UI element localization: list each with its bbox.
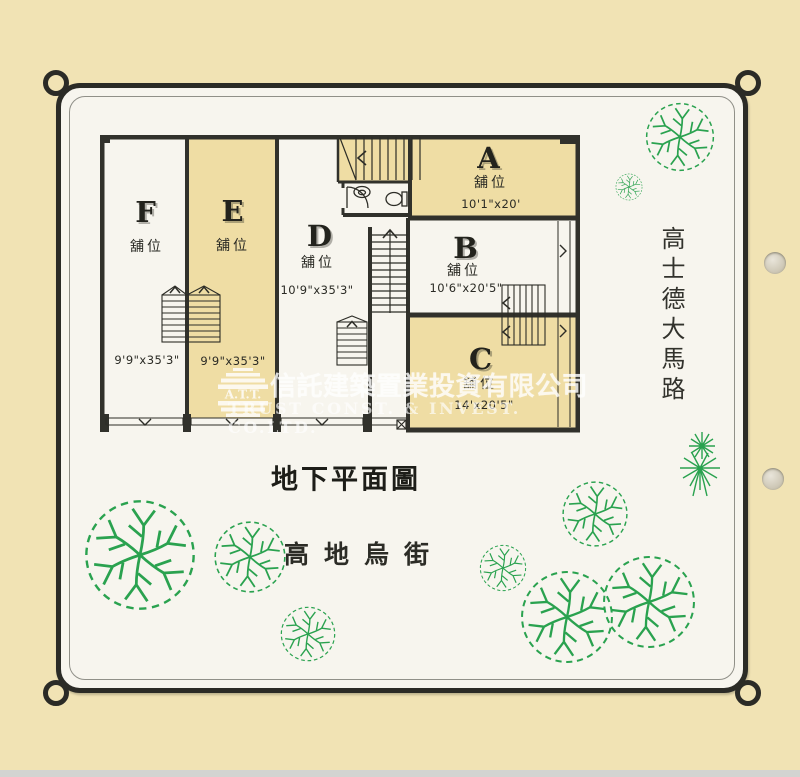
unit-dim-e: 9'9"x35'3" xyxy=(200,354,265,368)
unit-letter-e: E xyxy=(221,194,244,228)
unit-type-a: 舖位 xyxy=(474,172,508,192)
unit-letter-a: A xyxy=(477,141,501,175)
unit-type-b: 舖位 xyxy=(447,260,481,280)
unit-dim-c: 14'x20'5" xyxy=(454,398,514,412)
stair-d xyxy=(337,316,367,365)
plan-title: 地下平面圖 xyxy=(271,458,421,497)
unit-dim-f: 9'9"x35'3" xyxy=(114,353,179,367)
central-stair xyxy=(372,230,408,313)
corner-ornament-top-right xyxy=(735,70,761,96)
unit-letter-c: C xyxy=(469,342,493,376)
street-name-right: 高士德大馬路 xyxy=(654,226,689,406)
punch-hole xyxy=(762,468,784,490)
unit-dim-d: 10'9"x35'3" xyxy=(280,283,353,297)
shaft-box xyxy=(397,420,406,429)
unit-dim-b: 10'6"x20'5" xyxy=(429,281,502,295)
scan-edge xyxy=(0,770,800,777)
unit-letter-f: F xyxy=(135,195,157,229)
punch-hole xyxy=(764,252,786,274)
bathroom xyxy=(347,187,407,209)
corner-ornament-top-left xyxy=(43,70,69,96)
storefronts xyxy=(106,418,406,425)
unit-letter-d: D xyxy=(307,219,333,253)
unit-dim-a: 10'1"x20' xyxy=(461,197,521,211)
street-name-bottom: 高地烏街 xyxy=(284,535,444,571)
unit-type-f: 舖位 xyxy=(130,236,164,256)
unit-type-e: 舖位 xyxy=(216,235,250,255)
unit-type-c: 舖位 xyxy=(463,373,497,393)
sink-icon xyxy=(354,187,370,198)
corner-ornament-bottom-left xyxy=(43,680,69,706)
unit-e-fill xyxy=(187,135,277,418)
corner-ornament-bottom-right xyxy=(735,680,761,706)
toilet-icon xyxy=(386,193,402,206)
unit-type-d: 舖位 xyxy=(301,252,335,272)
